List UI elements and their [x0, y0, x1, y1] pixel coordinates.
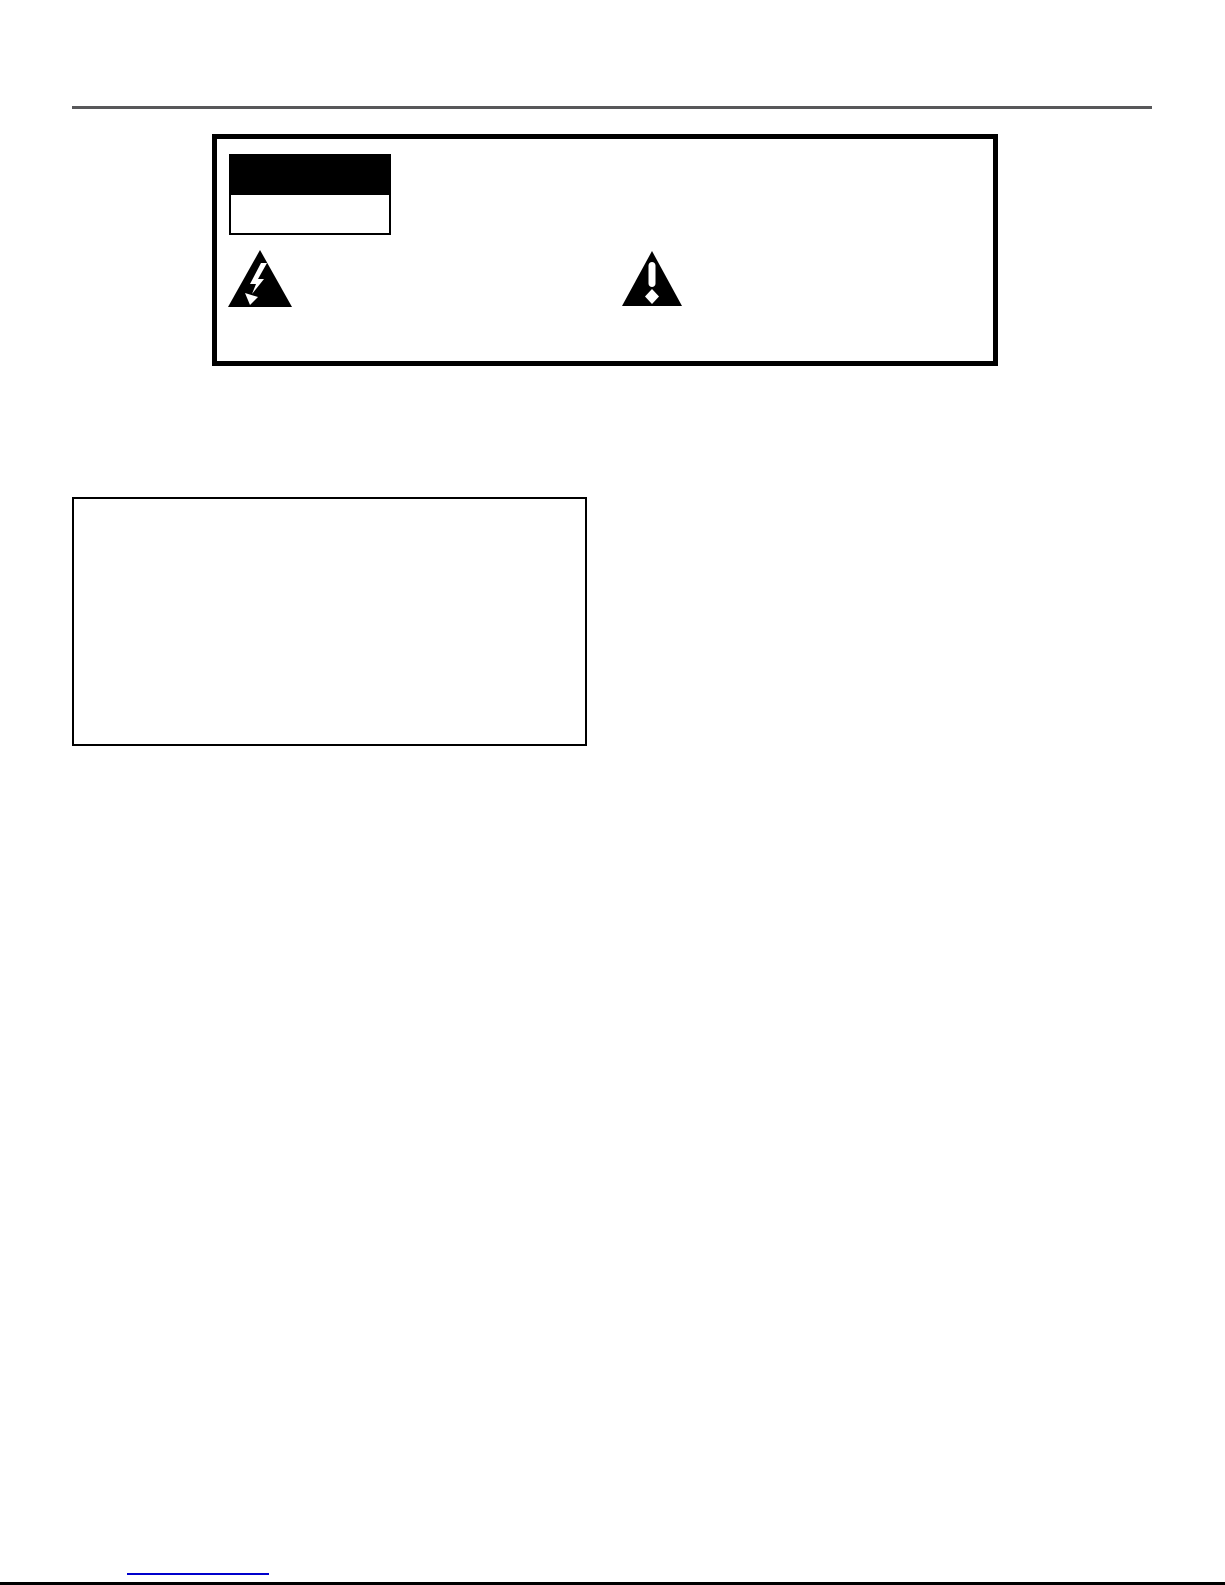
top-divider-rule: [72, 106, 1152, 109]
triangle-shape: [228, 250, 292, 307]
document-page: [0, 0, 1225, 1585]
warning-subtitle-block: [229, 193, 391, 235]
footer-link[interactable]: [127, 1573, 269, 1575]
note-box: [72, 497, 587, 746]
high-voltage-triangle-icon: [228, 250, 292, 307]
warning-panel: [212, 134, 998, 366]
warning-title-block: [229, 154, 391, 193]
exclamation-bar-glyph: [649, 262, 656, 287]
alert-exclamation-triangle-icon: [622, 251, 682, 306]
